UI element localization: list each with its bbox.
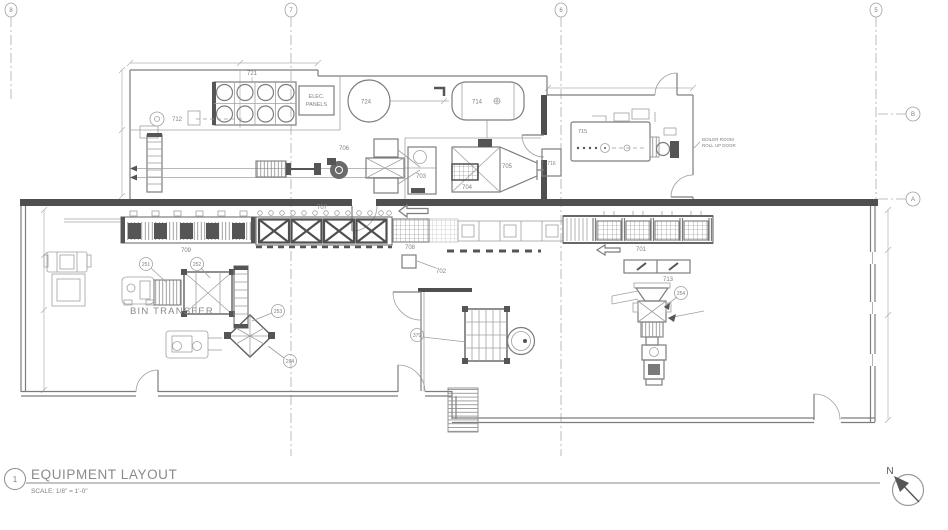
bin-transfer-vehicle-2 <box>166 331 222 358</box>
grid-bubble-row-a: A <box>906 192 920 206</box>
elec-panels-box: ELEC. PANELS <box>299 86 334 115</box>
equipment-label-706: 706 <box>339 146 350 152</box>
grid-bubble-col-7-label: 7 <box>289 8 293 14</box>
equipment-label-709: 709 <box>181 248 192 254</box>
flow-arrow-left-icon <box>597 245 620 255</box>
grid-bubble-col-5: 5 <box>870 3 882 17</box>
equipment-label-715: 715 <box>578 129 587 135</box>
tank-724: 724 <box>348 80 449 122</box>
tag-253: 253 <box>252 305 285 322</box>
grid-bubble-row-a-label: A <box>911 197 915 203</box>
equipment-label-708: 708 <box>405 245 416 251</box>
bin-transfer-label: BIN TRANSFER <box>130 306 214 317</box>
tag-379: 379 <box>411 329 467 343</box>
north-arrow: N <box>886 466 923 506</box>
tag-254-label: 254 <box>677 291 686 297</box>
tag-264-label: 264 <box>286 359 295 365</box>
tag-253-label: 253 <box>274 309 283 315</box>
bin-transfer-motor <box>154 280 181 305</box>
door-boiler-right <box>671 175 693 197</box>
equipment-label-703: 703 <box>416 174 427 180</box>
title-block: 1 EQUIPMENT LAYOUT SCALE: 1/8" = 1'-0" <box>5 467 881 495</box>
tag-252-label: 252 <box>193 262 202 268</box>
sheet-title: EQUIPMENT LAYOUT <box>31 467 177 482</box>
mill-254: 254 <box>612 283 704 385</box>
grid-bubble-col-6-label: 6 <box>559 8 563 14</box>
grid-bubble-row-b-label: B <box>911 112 915 118</box>
grid-bubble-row-b: B <box>906 107 920 121</box>
tank-714: 714 <box>434 82 524 138</box>
equipment-label-707: 707 <box>317 205 328 211</box>
grid-bubble-col-5-label: 5 <box>874 8 878 14</box>
tag-379-label: 379 <box>413 333 422 339</box>
bin-transfer-vehicle <box>122 277 154 305</box>
boiler-715: 715 <box>571 109 679 161</box>
conveyor-709: 709 <box>64 211 255 254</box>
dimension-lines <box>41 60 891 423</box>
equipment-label-724: 724 <box>361 100 372 106</box>
boiler-room-note-line1: BOILER ROOM <box>702 137 734 142</box>
equipment-label-712: 712 <box>172 117 183 123</box>
grid-bubble-col-6: 6 <box>555 3 567 17</box>
grid-bubble-col-8: 8 <box>5 3 17 17</box>
flow-arrow-left-icon <box>399 205 428 217</box>
detail-number: 1 <box>13 475 18 484</box>
equipment-704: 704 <box>452 164 478 191</box>
drawing-sheet: 8 7 6 5 B A <box>0 0 948 530</box>
grid-bubble-col-7: 7 <box>285 3 297 17</box>
interior-room-walls <box>393 288 472 391</box>
boiler-room-note: BOILER ROOM ROLL UP DOOR <box>694 137 737 148</box>
scale-note: SCALE: 1/8" = 1'-0" <box>31 488 88 495</box>
stairs <box>448 388 478 432</box>
equipment-label-721: 721 <box>247 71 258 77</box>
cabinet-703: 703 <box>408 147 436 194</box>
tag-264: 264 <box>268 346 297 368</box>
equipment-label-714: 714 <box>472 100 483 106</box>
boiler-room-note-line2: ROLL UP DOOR <box>702 143 737 148</box>
conveyor-707: 707 <box>256 205 392 247</box>
equipment-layout-drawing: 8 7 6 5 B A <box>0 0 948 530</box>
panel-bank-721: 721 <box>212 71 296 125</box>
equipment-label-713: 713 <box>663 277 674 283</box>
equipment-label-705: 705 <box>502 164 513 170</box>
tag-251-label: 251 <box>142 262 151 268</box>
equipment-label-702: 702 <box>436 269 447 275</box>
dock-truck <box>44 252 91 306</box>
tag-252: 252 <box>191 258 211 279</box>
conveyor-junction: 708 <box>393 205 458 251</box>
conveyor-701: 701 <box>563 211 713 255</box>
conveyor-light-section <box>447 221 563 251</box>
north-label: N <box>886 466 893 477</box>
bin-transfer-group: BIN TRANSFER 251 252 253 264 <box>122 258 297 368</box>
grid-bubble-col-8-label: 8 <box>9 8 13 14</box>
equipment-label-704: 704 <box>462 185 473 191</box>
elec-panels-label-line1: ELEC. <box>309 94 325 100</box>
bin-diamond <box>224 315 275 357</box>
door-boiler-top <box>655 73 677 95</box>
vertical-conveyor-upper <box>147 133 162 192</box>
door-bottom-left <box>136 370 158 392</box>
equipment-label-701: 701 <box>636 247 647 253</box>
elec-panels-label-line2: PANELS <box>306 102 328 108</box>
tag-254: 254 <box>664 287 688 311</box>
equipment-label-716: 716 <box>547 161 556 167</box>
table-713: 713 <box>624 260 690 283</box>
equipment-702: 702 <box>402 255 447 275</box>
blower-379: 379 <box>411 306 535 364</box>
